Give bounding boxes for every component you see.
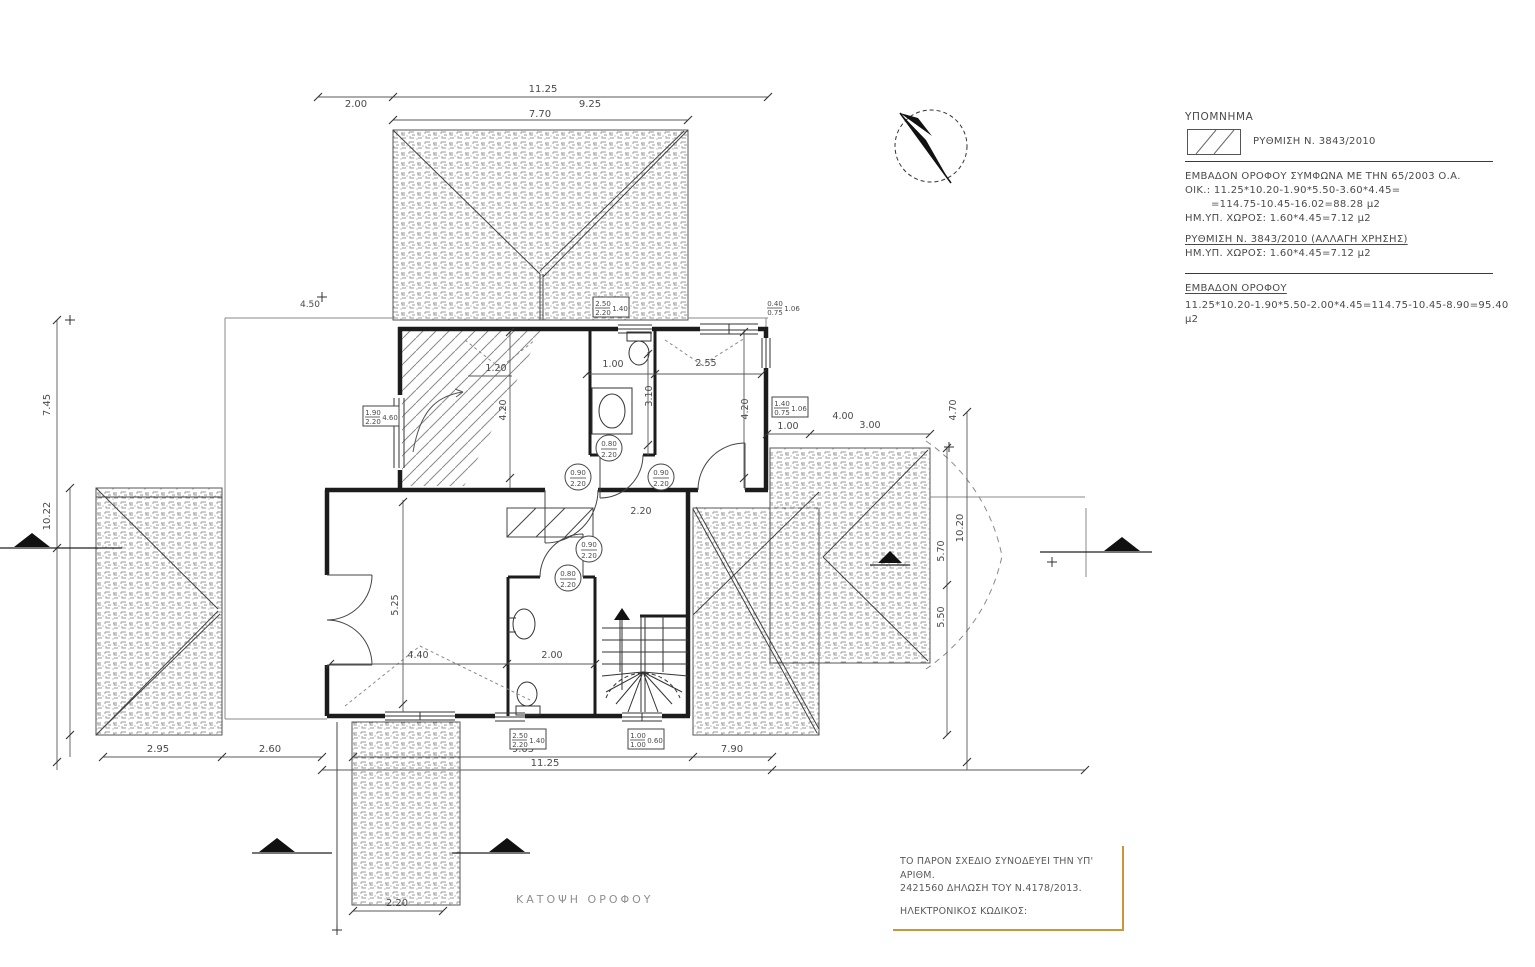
dim-label: 4.00: [832, 411, 853, 422]
dim-label: 2.20: [512, 741, 528, 749]
area-note-line: =114.75-10.45-16.02=88.28 μ2: [1185, 198, 1525, 212]
dim-label: 1.06: [791, 405, 807, 413]
dim-label: 3.10: [644, 385, 655, 406]
stair-direction-arrow: [614, 608, 630, 620]
legend-row: ΡΥΘΜΙΣΗ Ν. 3843/2010: [1187, 129, 1525, 155]
toilet-icon: [629, 341, 649, 365]
dim-label: 4.60: [382, 414, 398, 422]
dim-label: 0.80: [601, 440, 617, 448]
total-area-title: ΕΜΒΑΔΟΝ ΟΡΟΦΟΥ: [1185, 282, 1525, 296]
dim-label: 2.20: [581, 552, 597, 560]
toilet-tank: [516, 706, 540, 715]
section-marker-icon: [14, 533, 50, 547]
bathroom-fixtures: [508, 332, 651, 715]
legend-title: ΥΠΟΜΝΗΜΑ: [1185, 110, 1525, 124]
dim-label: 4.20: [740, 398, 751, 419]
dim-label: 0.90: [653, 469, 669, 477]
sink-counter: [592, 388, 632, 434]
north-arrow-icon: [895, 110, 967, 183]
area-note-line: ΟΙΚ.: 11.25*10.20-1.90*5.50-3.60*4.45=: [1185, 184, 1525, 198]
dim-label: 5.70: [936, 540, 947, 561]
legend-notes-block: ΥΠΟΜΝΗΜΑ ΡΥΘΜΙΣΗ Ν. 3843/2010 ΕΜΒΑΔΟΝ ΟΡ…: [1185, 110, 1525, 327]
dim-label: 7.70: [529, 109, 551, 120]
dim-label: 0.75: [774, 409, 790, 417]
dim-label: 1.00: [777, 421, 798, 432]
dim-label: 5.50: [936, 606, 947, 627]
dim-label: 0.80: [560, 570, 576, 578]
dim-label: 2.50: [512, 732, 528, 740]
door-swings: [327, 389, 745, 665]
dim-label: 2.20: [630, 506, 651, 517]
dim-label: 2.20: [560, 581, 576, 589]
dim-label: 10.22: [42, 502, 53, 531]
drawing-title: ΚΑΤΟΨΗ ΟΡΟΦΟΥ: [516, 893, 654, 906]
dim-label: 1.06: [784, 305, 800, 313]
dim-label: 3.00: [859, 420, 880, 431]
regulation-hatch-area: [402, 330, 542, 486]
toilet-icon: [517, 682, 537, 706]
diagonal-hatch-swatch-icon: [1187, 129, 1241, 155]
dim-label: 7.90: [721, 744, 743, 755]
dim-label: 0.90: [570, 469, 586, 477]
sink-icon: [513, 609, 535, 639]
dim-label: 11.25: [529, 84, 558, 95]
dim-label: 2.50: [595, 300, 611, 308]
dim-label: 1.00: [630, 732, 646, 740]
dim-label: 2.20: [653, 480, 669, 488]
divider: [1185, 161, 1493, 162]
declaration-line: 2421560 ΔΗΛΩΣΗ ΤΟΥ Ν.4178/2013.: [900, 882, 1122, 896]
dim-label: 0.75: [767, 309, 783, 317]
dim-label: 11.25: [531, 758, 560, 769]
dim-label: 2.55: [695, 358, 716, 369]
area-note-line: ΕΜΒΑΔΟΝ ΟΡΟΦΟΥ ΣΥΜΦΩΝΑ ΜΕ ΤΗΝ 65/2003 Ο.…: [1185, 170, 1525, 184]
regulation-title: ΡΥΘΜΙΣΗ Ν. 3843/2010 (ΑΛΛΑΓΗ ΧΡΗΣΗΣ): [1185, 233, 1525, 247]
dim-label: 4.50: [300, 300, 320, 310]
dim-label: 0.60: [647, 737, 663, 745]
roof-right: [693, 448, 930, 735]
section-marker-icon: [259, 838, 295, 852]
dim-label: 1.20: [485, 363, 506, 374]
divider: [1185, 273, 1493, 274]
dim-label: 2.60: [259, 744, 281, 755]
drawing-sheet: 11.252.009.257.704.501.201.002.553.104.2…: [0, 0, 1535, 967]
area-note-line: ΗΜ.ΥΠ. ΧΩΡΟΣ: 1.60*4.45=7.12 μ2: [1185, 212, 1525, 226]
dim-label: 0.90: [581, 541, 597, 549]
dim-label: 1.40: [612, 305, 628, 313]
dim-label: 5.25: [390, 594, 401, 615]
dim-label: 2.95: [147, 744, 169, 755]
total-area-line: 11.25*10.20-1.90*5.50-2.00*4.45=114.75-1…: [1185, 299, 1525, 327]
staircase: [602, 608, 688, 712]
dim-label: 2.20: [595, 309, 611, 317]
dim-label: 4.20: [498, 399, 509, 420]
dim-label: 1.00: [630, 741, 646, 749]
closet: [507, 508, 593, 537]
dim-label: 1.90: [365, 409, 381, 417]
dim-label: 1.40: [529, 737, 545, 745]
dim-label: 4.40: [407, 650, 428, 661]
dim-label: 9.25: [579, 99, 601, 110]
dim-label: 1.00: [602, 359, 623, 370]
dim-label: 1.40: [774, 400, 790, 408]
declaration-box: ΤΟ ΠΑΡΟΝ ΣΧΕΔΙΟ ΣΥΝΟΔΕΥΕΙ ΤΗΝ ΥΠ' ΑΡΙΘΜ.…: [893, 846, 1124, 931]
dim-label: 2.00: [345, 99, 367, 110]
sink-icon: [599, 394, 625, 428]
roof-top: [393, 130, 688, 320]
dim-label: 2.20: [365, 418, 381, 426]
dim-label: 4.70: [948, 399, 959, 420]
dim-label: 10.20: [955, 514, 966, 543]
dim-label: 7.45: [42, 394, 53, 416]
declaration-line: ΗΛΕΚΤΡΟΝΙΚΟΣ ΚΩΔΙΚΟΣ:: [900, 905, 1122, 919]
dim-label: 0.40: [767, 300, 783, 308]
roof-left: [96, 488, 222, 735]
dim-label: 2.20: [601, 451, 617, 459]
declaration-line: ΤΟ ΠΑΡΟΝ ΣΧΕΔΙΟ ΣΥΝΟΔΕΥΕΙ ΤΗΝ ΥΠ' ΑΡΙΘΜ.: [900, 855, 1122, 882]
legend-item-label: ΡΥΘΜΙΣΗ Ν. 3843/2010: [1253, 135, 1376, 149]
regulation-line: ΗΜ.ΥΠ. ΧΩΡΟΣ: 1.60*4.45=7.12 μ2: [1185, 247, 1525, 261]
dim-label: 2.20: [386, 898, 408, 909]
section-marker-icon: [489, 838, 525, 852]
dim-label: 2.20: [570, 480, 586, 488]
section-marker-icon: [1104, 537, 1140, 551]
dim-label: 2.00: [541, 650, 562, 661]
